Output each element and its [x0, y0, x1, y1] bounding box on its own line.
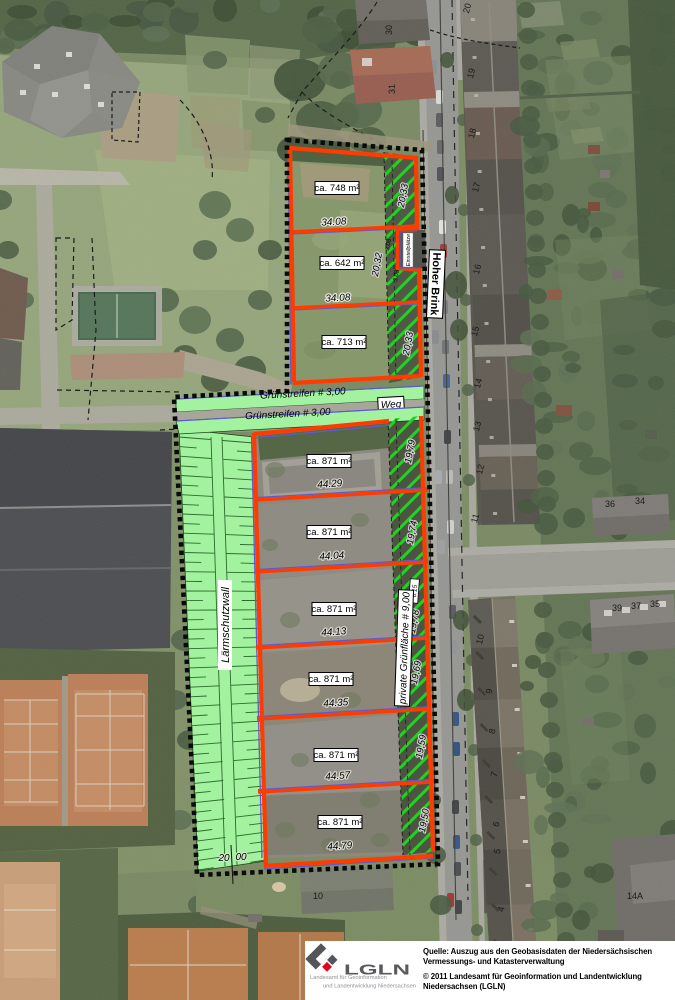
svg-text:ca. 748 m²: ca. 748 m²: [315, 183, 360, 194]
svg-text:Quelle: Auszug aus den Geobasi: Quelle: Auszug aus den Geobasisdaten der…: [423, 947, 652, 956]
svg-text:und Landentwicklung Niedersach: und Landentwicklung Niedersachsen: [323, 984, 416, 990]
svg-text:© 2011 Landesamt für Geoinform: © 2011 Landesamt für Geoinformation und …: [423, 972, 642, 981]
svg-text:44.04: 44.04: [319, 550, 345, 563]
svg-text:44.29: 44.29: [317, 478, 343, 491]
svg-text:Landesamt für Geoinformation: Landesamt für Geoinformation: [310, 975, 387, 981]
svg-text:ca. 642 m²: ca. 642 m²: [320, 258, 365, 269]
svg-text:10: 10: [313, 891, 323, 901]
svg-text:14A: 14A: [627, 891, 643, 901]
svg-text:35: 35: [650, 599, 660, 609]
svg-text:ca. 871 m²: ca. 871 m²: [318, 817, 363, 828]
svg-text:44.13: 44.13: [321, 626, 347, 639]
svg-text:ca. 871 m²: ca. 871 m²: [314, 750, 359, 761]
svg-text:Einstellplätze: Einstellplätze: [406, 234, 412, 266]
svg-text:44.35: 44.35: [323, 697, 349, 710]
svg-text:Niedersachsen (LGLN): Niedersachsen (LGLN): [423, 982, 506, 991]
svg-text:30: 30: [384, 25, 394, 35]
svg-text:36: 36: [605, 499, 615, 509]
svg-text:Lärmschutzwall: Lärmschutzwall: [220, 587, 232, 663]
svg-text:37: 37: [631, 601, 641, 611]
svg-text:34.08: 34.08: [325, 292, 351, 304]
svg-text:34: 34: [635, 496, 645, 506]
svg-text:ca. 871 m²: ca. 871 m²: [309, 674, 354, 685]
svg-text:20: 20: [217, 853, 230, 864]
svg-text:00: 00: [235, 852, 247, 863]
svg-text:39: 39: [612, 603, 622, 613]
svg-text:ca. 871 m²: ca. 871 m²: [312, 604, 357, 615]
svg-text:ca. 871 m²: ca. 871 m²: [307, 456, 352, 467]
svg-text:31: 31: [387, 84, 397, 94]
svg-text:ca. 871 m²: ca. 871 m²: [307, 527, 352, 538]
svg-text:44.57: 44.57: [325, 770, 351, 783]
svg-text:34.08: 34.08: [321, 216, 347, 228]
svg-text:44.79: 44.79: [327, 840, 353, 853]
svg-text:Vermessungs- und Katasterverwa: Vermessungs- und Katasterverwaltung: [423, 957, 565, 966]
svg-text:ca. 713 m²: ca. 713 m²: [322, 337, 367, 348]
